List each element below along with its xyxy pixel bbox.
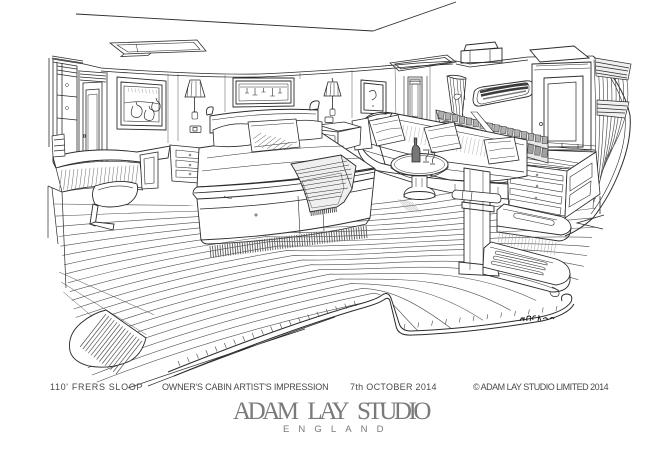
svg-text:ENGLAND: ENGLAND [283, 424, 391, 435]
svg-text:OWNER'S CABIN ARTIST'S IMPRESS: OWNER'S CABIN ARTIST'S IMPRESSION [162, 382, 329, 392]
svg-text:© ADAM LAY STUDIO LIMITED 2014: © ADAM LAY STUDIO LIMITED 2014 [473, 382, 609, 392]
svg-text:110' FRERS SLOOP: 110' FRERS SLOOP [50, 382, 143, 392]
svg-text:7th OCTOBER 2014: 7th OCTOBER 2014 [350, 382, 437, 392]
svg-text:ADAM LAY STUDIO: ADAM LAY STUDIO [233, 398, 434, 425]
